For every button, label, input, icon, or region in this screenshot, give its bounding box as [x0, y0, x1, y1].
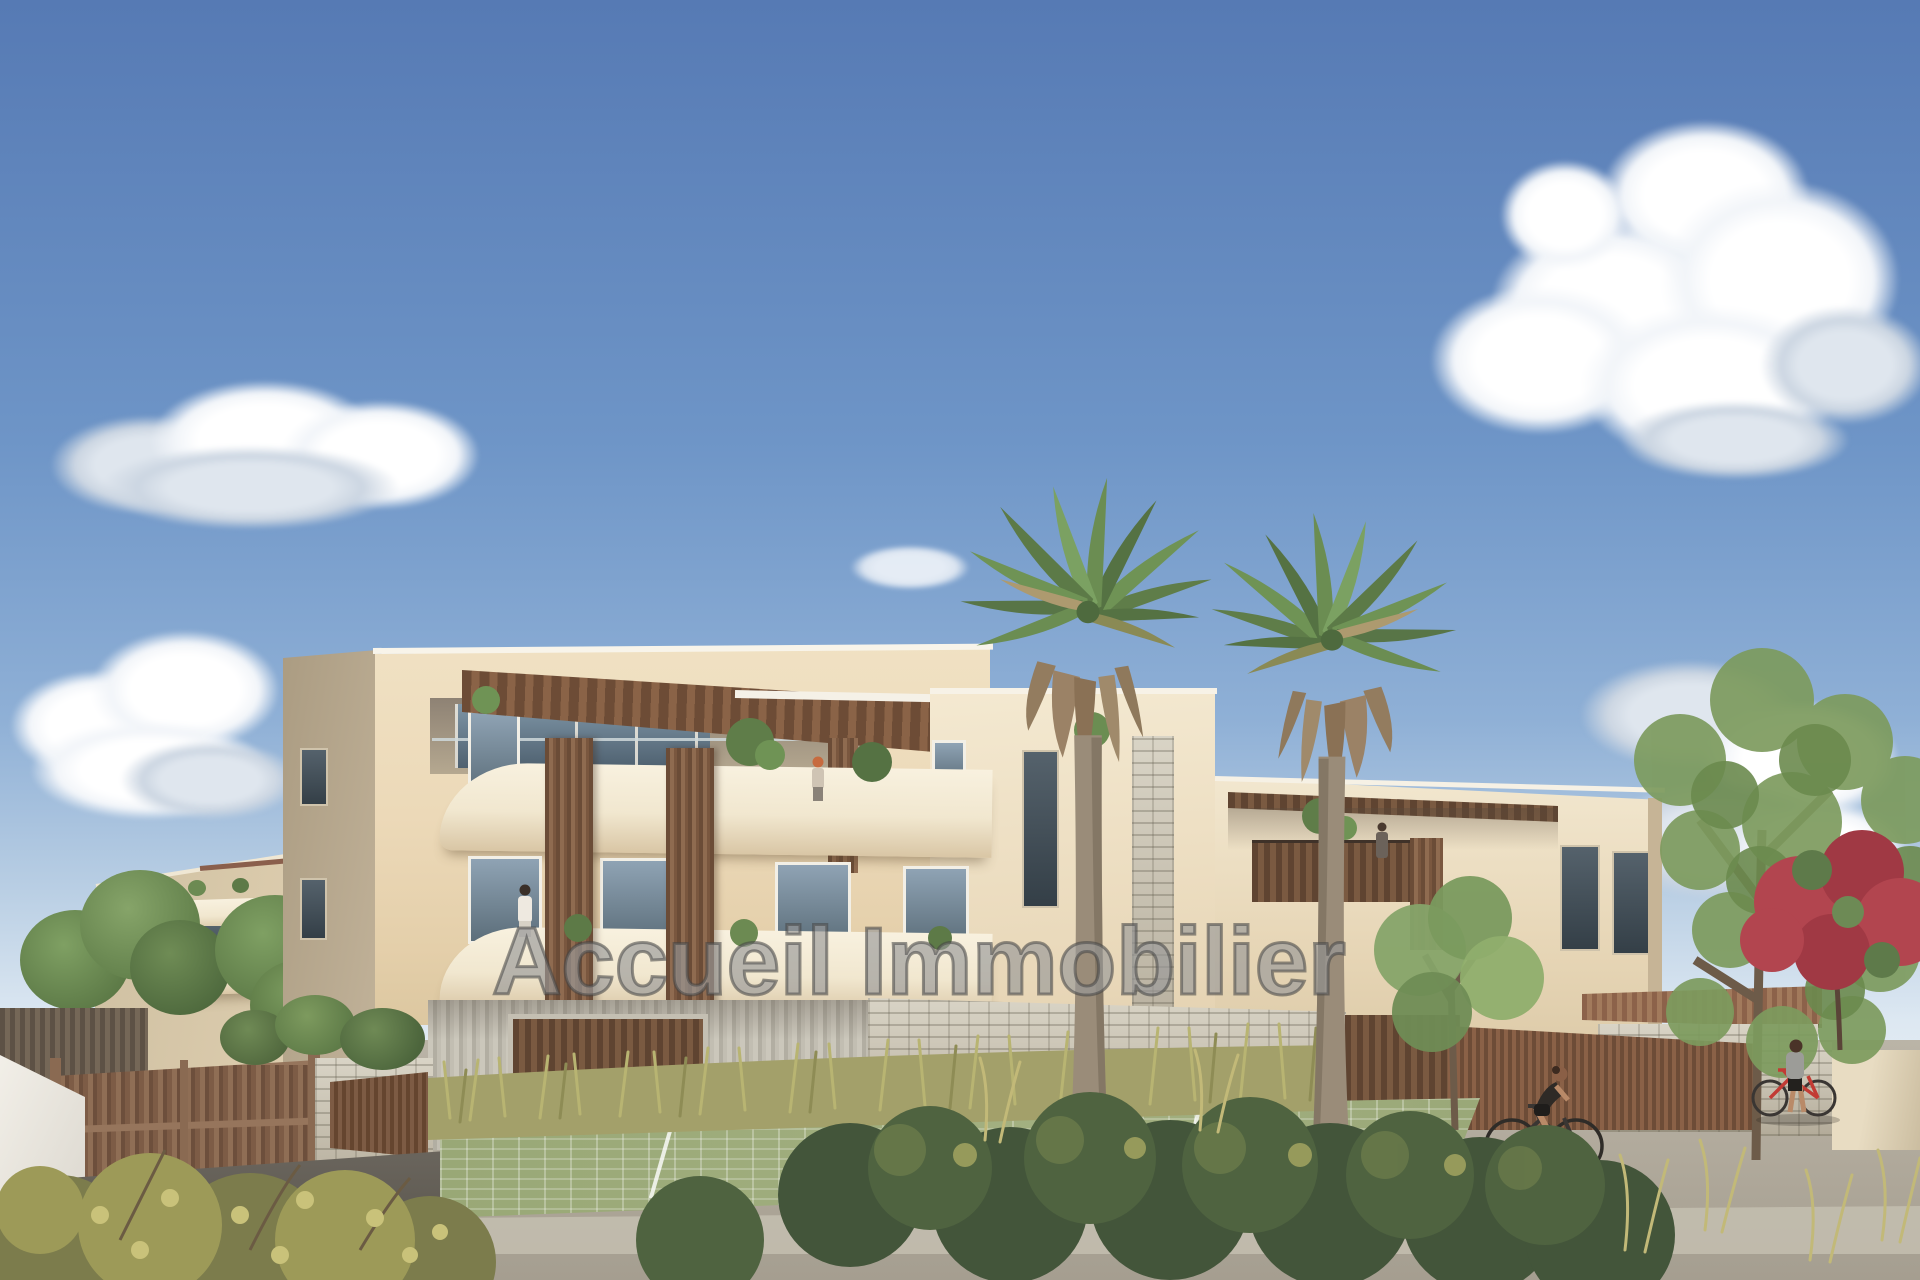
woman-on-terrace — [812, 757, 824, 802]
architectural-render-scene: Accueil Immobilier — [0, 0, 1920, 1280]
foreground-layer — [0, 0, 1920, 1280]
fan-palm-left — [960, 478, 1215, 1139]
bottom-left-bush — [0, 1150, 496, 1280]
watermark-text: Accueil Immobilier — [492, 914, 1452, 1010]
person-right-balcony — [1376, 823, 1388, 859]
